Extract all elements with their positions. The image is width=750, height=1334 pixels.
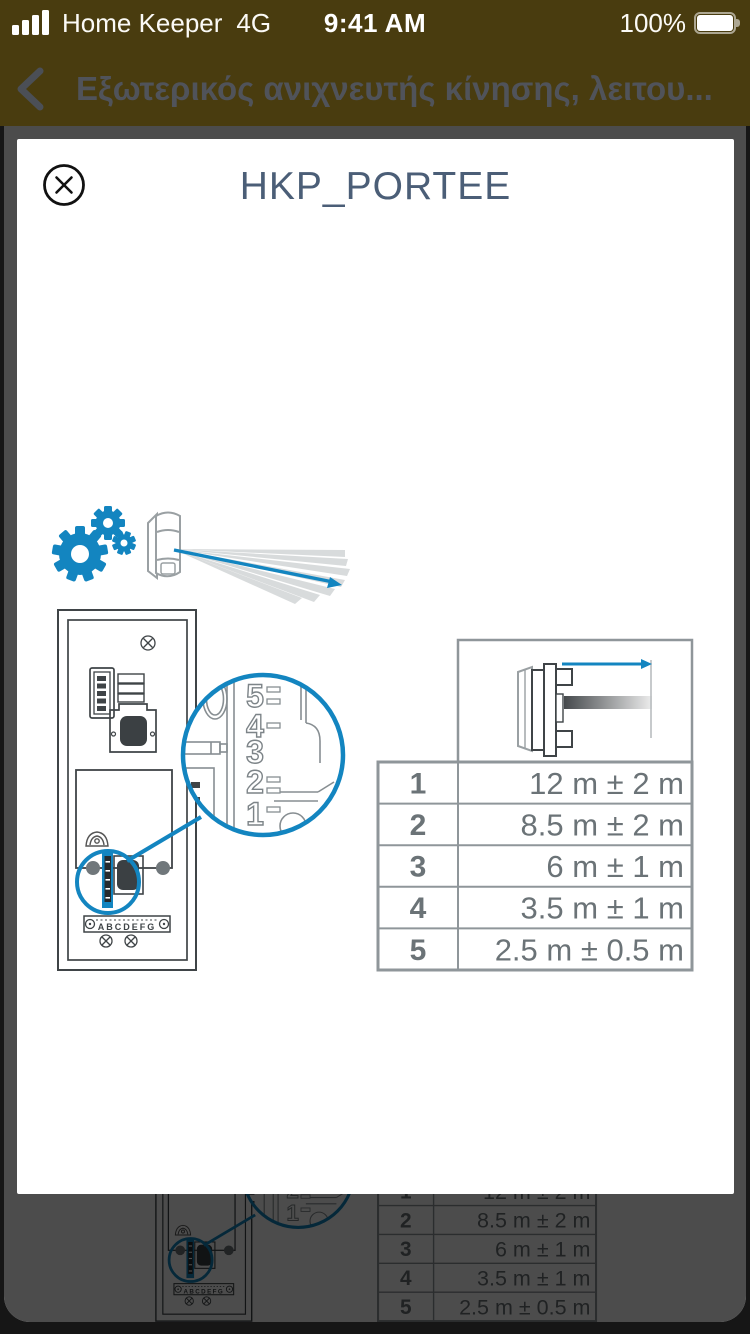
battery-percent-label: 100% (620, 8, 687, 39)
diagram-instance-modal (40, 470, 700, 990)
status-bar: Home Keeper 4G 9:41 AM 100% (0, 0, 750, 46)
modal-title: HKP_PORTEE (17, 165, 734, 209)
image-preview-modal: HKP_PORTEE (17, 139, 734, 1194)
chevron-left-icon (13, 66, 47, 112)
page-title: Εξωτερικός ανιχνευτής κίνησης, λειτου... (76, 64, 726, 114)
app-header: Home Keeper 4G 9:41 AM 100% Εξωτερικός α… (0, 0, 750, 126)
phone-screen: { "status_bar": { "carrier": "Home Keepe… (0, 0, 750, 1334)
battery-icon (694, 12, 740, 34)
navigation-bar: Εξωτερικός ανιχνευτής κίνησης, λειτου... (0, 52, 750, 126)
back-button[interactable] (10, 66, 50, 114)
